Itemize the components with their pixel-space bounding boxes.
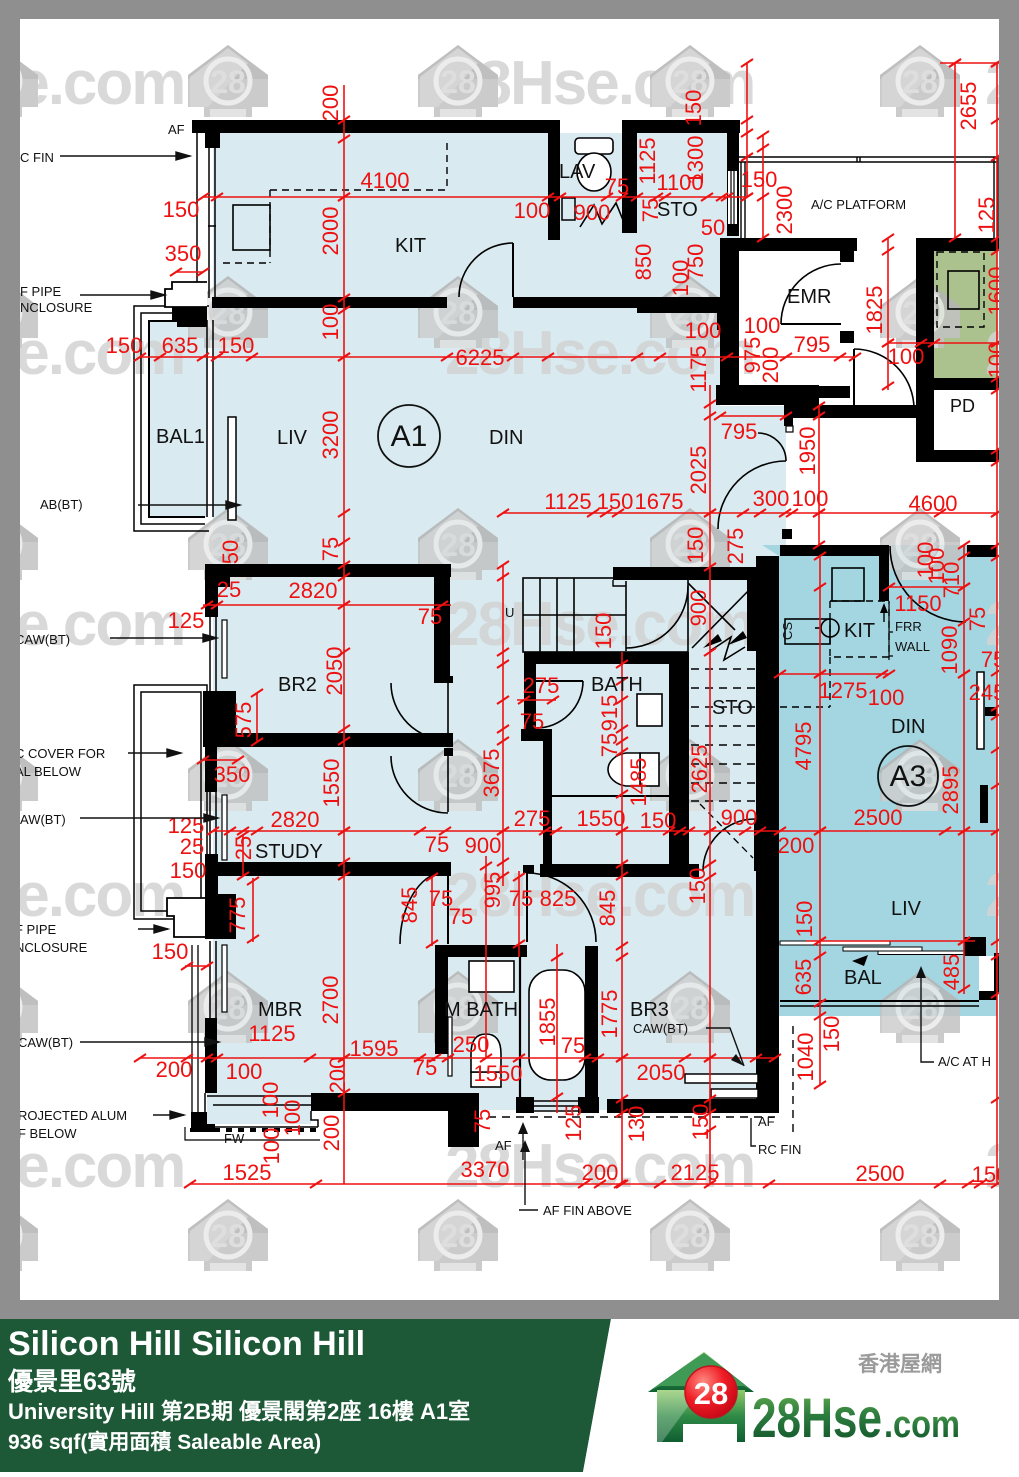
svg-text:150: 150 <box>218 333 255 358</box>
svg-text:AF: AF <box>168 122 185 137</box>
svg-text:2125: 2125 <box>671 1160 720 1185</box>
svg-text:1125: 1125 <box>248 1021 295 1046</box>
svg-text:A1: A1 <box>391 420 428 453</box>
svg-text:936 sqf(實用面積 Saleable Area): 936 sqf(實用面積 Saleable Area) <box>8 1430 321 1454</box>
svg-text:350: 350 <box>165 241 202 266</box>
svg-text:2000: 2000 <box>318 207 343 256</box>
svg-text:AB(BT): AB(BT) <box>40 497 83 512</box>
svg-text:100: 100 <box>318 304 343 341</box>
svg-text:150: 150 <box>163 197 200 222</box>
svg-text:75: 75 <box>520 709 544 734</box>
svg-text:75: 75 <box>597 733 622 757</box>
svg-text:75: 75 <box>470 1109 495 1133</box>
svg-text:KIT: KIT <box>844 620 875 642</box>
svg-text:2655: 2655 <box>956 82 981 131</box>
svg-text:300: 300 <box>753 486 790 511</box>
svg-text:150: 150 <box>688 1104 713 1141</box>
svg-text:100: 100 <box>668 260 693 297</box>
svg-text:150: 150 <box>685 868 710 905</box>
svg-text:150: 150 <box>591 613 616 650</box>
svg-text:2050: 2050 <box>637 1060 686 1085</box>
svg-text:150: 150 <box>170 858 207 883</box>
svg-text:75: 75 <box>965 607 990 631</box>
svg-text:CS: CS <box>780 622 795 640</box>
svg-text:BAL: BAL <box>844 967 882 989</box>
svg-text:STO: STO <box>657 199 698 221</box>
svg-text:150: 150 <box>683 527 708 564</box>
svg-text:25: 25 <box>231 836 256 860</box>
svg-text:200: 200 <box>582 1160 619 1185</box>
svg-text:710: 710 <box>939 562 964 599</box>
svg-text:100: 100 <box>792 486 829 511</box>
svg-text:28Hse.com: 28Hse.com <box>0 590 184 659</box>
svg-text:75: 75 <box>605 174 629 199</box>
svg-text:75: 75 <box>318 537 343 561</box>
svg-text:1775: 1775 <box>597 990 622 1039</box>
svg-text:FW: FW <box>224 1131 245 1146</box>
svg-text:575: 575 <box>231 702 256 739</box>
svg-text:STO: STO <box>712 697 753 719</box>
svg-text:3370: 3370 <box>461 1157 510 1182</box>
svg-text:CAW(BT): CAW(BT) <box>18 1035 73 1050</box>
svg-text:900: 900 <box>574 200 611 225</box>
svg-text:825: 825 <box>540 886 577 911</box>
svg-text:25: 25 <box>180 834 204 859</box>
svg-text:DIN: DIN <box>891 716 925 738</box>
svg-text:1550: 1550 <box>319 759 344 808</box>
svg-text:775: 775 <box>225 897 250 934</box>
svg-text:2050: 2050 <box>322 647 347 696</box>
svg-text:EMR: EMR <box>787 286 831 308</box>
svg-text:MBR: MBR <box>258 999 302 1021</box>
svg-text:200: 200 <box>325 1057 350 1094</box>
svg-text:150: 150 <box>681 90 706 127</box>
svg-text:NCLOSURE: NCLOSURE <box>15 940 88 955</box>
svg-text:BATH: BATH <box>591 674 643 696</box>
svg-text:1485: 1485 <box>626 758 651 807</box>
svg-text:F PIPE: F PIPE <box>20 284 62 299</box>
svg-text:150: 150 <box>106 333 143 358</box>
svg-text:150: 150 <box>640 808 677 833</box>
svg-text:2500: 2500 <box>856 1161 905 1186</box>
svg-text:A/C PLATFORM: A/C PLATFORM <box>811 197 906 212</box>
svg-text:275: 275 <box>523 673 560 698</box>
svg-text:100: 100 <box>514 198 551 223</box>
svg-text:A/C AT H: A/C AT H <box>938 1054 991 1069</box>
svg-text:U: U <box>505 605 514 620</box>
svg-text:1090: 1090 <box>937 626 962 675</box>
svg-text:100: 100 <box>888 344 925 369</box>
svg-text:BR3: BR3 <box>630 999 669 1021</box>
svg-text:25: 25 <box>217 577 241 602</box>
svg-text:795: 795 <box>794 332 831 357</box>
svg-text:125: 125 <box>561 1105 586 1142</box>
svg-text:2300: 2300 <box>772 186 797 235</box>
svg-text:75: 75 <box>509 886 533 911</box>
svg-text:100: 100 <box>685 318 722 343</box>
svg-text:優景里63號: 優景里63號 <box>7 1368 136 1396</box>
svg-text:200: 200 <box>319 1115 344 1152</box>
svg-text:2820: 2820 <box>271 807 320 832</box>
svg-text:200: 200 <box>318 85 343 122</box>
svg-text:1175: 1175 <box>686 345 711 392</box>
svg-text:DIN: DIN <box>489 427 523 449</box>
svg-text:845: 845 <box>595 890 620 927</box>
svg-text:AF: AF <box>758 1114 775 1129</box>
svg-text:275: 275 <box>723 528 748 565</box>
svg-text:900: 900 <box>465 833 502 858</box>
svg-text:75: 75 <box>561 1033 585 1058</box>
svg-text:2625: 2625 <box>687 745 712 794</box>
svg-text:4795: 4795 <box>791 722 816 771</box>
svg-text:28Hse: 28Hse <box>752 1386 882 1449</box>
svg-text:A3: A3 <box>890 760 927 793</box>
svg-text:100: 100 <box>259 1128 284 1165</box>
svg-text:AF: AF <box>495 1138 512 1153</box>
svg-text:485: 485 <box>939 954 964 991</box>
svg-text:150: 150 <box>152 939 189 964</box>
svg-text:LIV: LIV <box>277 427 308 449</box>
svg-text:LIV: LIV <box>891 898 922 920</box>
svg-text:130: 130 <box>624 1106 649 1143</box>
svg-text:75: 75 <box>413 1055 437 1080</box>
svg-text:FRR: FRR <box>895 619 922 634</box>
svg-text:AF FIN ABOVE: AF FIN ABOVE <box>543 1203 632 1218</box>
svg-text:995: 995 <box>480 872 505 909</box>
svg-text:AW(BT): AW(BT) <box>20 812 66 827</box>
svg-text:150: 150 <box>792 901 817 938</box>
svg-text:150: 150 <box>597 489 634 514</box>
svg-text:75: 75 <box>418 604 442 629</box>
svg-text:915: 915 <box>597 695 622 732</box>
svg-text:LAV: LAV <box>559 161 596 183</box>
svg-text:75: 75 <box>425 832 449 857</box>
svg-text:900: 900 <box>686 590 711 627</box>
svg-text:1550: 1550 <box>577 806 626 831</box>
svg-text:1595: 1595 <box>350 1036 399 1061</box>
svg-text:1525: 1525 <box>223 1160 272 1185</box>
svg-text:1825: 1825 <box>862 286 887 335</box>
svg-text:NCLOSURE: NCLOSURE <box>20 300 93 315</box>
svg-text:.com: .com <box>884 1404 960 1446</box>
svg-text:C COVER FOR: C COVER FOR <box>15 746 105 761</box>
svg-text:F BELOW: F BELOW <box>18 1126 77 1141</box>
svg-text:2025: 2025 <box>686 446 711 495</box>
svg-text:635: 635 <box>791 959 816 996</box>
svg-text:250: 250 <box>453 1032 490 1057</box>
svg-text:2895: 2895 <box>938 766 963 815</box>
svg-text:845: 845 <box>397 887 422 924</box>
svg-text:AL BELOW: AL BELOW <box>15 764 82 779</box>
svg-text:100: 100 <box>744 313 781 338</box>
svg-text:200: 200 <box>778 833 815 858</box>
svg-text:50: 50 <box>218 540 243 564</box>
svg-text:2820: 2820 <box>289 578 338 603</box>
svg-text:1125: 1125 <box>544 489 591 514</box>
svg-text:850: 850 <box>631 244 656 281</box>
svg-text:350: 350 <box>214 762 251 787</box>
svg-text:50: 50 <box>701 215 725 240</box>
svg-text:3200: 3200 <box>318 411 343 460</box>
svg-text:1100: 1100 <box>656 170 703 195</box>
svg-text:1275: 1275 <box>819 678 868 703</box>
svg-text:100: 100 <box>226 1059 263 1084</box>
svg-text:4600: 4600 <box>909 491 958 516</box>
svg-text:275: 275 <box>514 806 551 831</box>
svg-text:BAL1: BAL1 <box>156 426 205 448</box>
svg-text:4100: 4100 <box>361 168 410 193</box>
svg-text:STUDY: STUDY <box>255 841 323 863</box>
svg-text:1040: 1040 <box>793 1033 818 1082</box>
svg-text:900: 900 <box>721 805 758 830</box>
svg-text:2700: 2700 <box>318 976 343 1025</box>
svg-text:125: 125 <box>168 608 205 633</box>
svg-text:WALL: WALL <box>895 639 930 654</box>
svg-text:University Hill 第2B期 優景閣第2座 1: University Hill 第2B期 優景閣第2座 16樓 A1室 <box>8 1399 470 1424</box>
svg-text:C FIN: C FIN <box>20 150 54 165</box>
svg-text:1950: 1950 <box>795 427 820 476</box>
svg-text:1675: 1675 <box>635 489 684 514</box>
svg-text:150: 150 <box>819 1016 844 1053</box>
svg-text:F PIPE: F PIPE <box>15 922 57 937</box>
svg-text:795: 795 <box>721 419 758 444</box>
svg-text:3675: 3675 <box>479 749 504 798</box>
svg-text:BR2: BR2 <box>278 674 317 696</box>
svg-text:6225: 6225 <box>456 345 505 370</box>
svg-text:1855: 1855 <box>535 998 560 1047</box>
svg-text:1150: 1150 <box>894 591 941 616</box>
svg-text:200: 200 <box>156 1057 193 1082</box>
svg-text:125: 125 <box>974 197 999 234</box>
svg-text:100: 100 <box>868 685 905 710</box>
svg-text:CAW(BT): CAW(BT) <box>15 632 70 647</box>
svg-text:200: 200 <box>758 347 783 384</box>
svg-text:Silicon Hill Silicon Hill: Silicon Hill Silicon Hill <box>8 1325 365 1363</box>
svg-text:KIT: KIT <box>395 235 426 257</box>
svg-text:香港屋網: 香港屋網 <box>858 1352 942 1376</box>
svg-text:2500: 2500 <box>854 805 903 830</box>
svg-text:635: 635 <box>162 333 199 358</box>
svg-text:CAW(BT): CAW(BT) <box>633 1021 688 1036</box>
svg-text:75: 75 <box>449 904 473 929</box>
svg-text:28: 28 <box>694 1376 728 1411</box>
svg-text:M BATH: M BATH <box>444 999 518 1021</box>
svg-text:1550: 1550 <box>474 1061 523 1086</box>
svg-text:ROJECTED ALUM: ROJECTED ALUM <box>18 1108 127 1123</box>
svg-text:RC FIN: RC FIN <box>758 1142 801 1157</box>
svg-text:PD: PD <box>950 396 975 416</box>
svg-text:28Hse.com: 28Hse.com <box>0 1132 184 1201</box>
